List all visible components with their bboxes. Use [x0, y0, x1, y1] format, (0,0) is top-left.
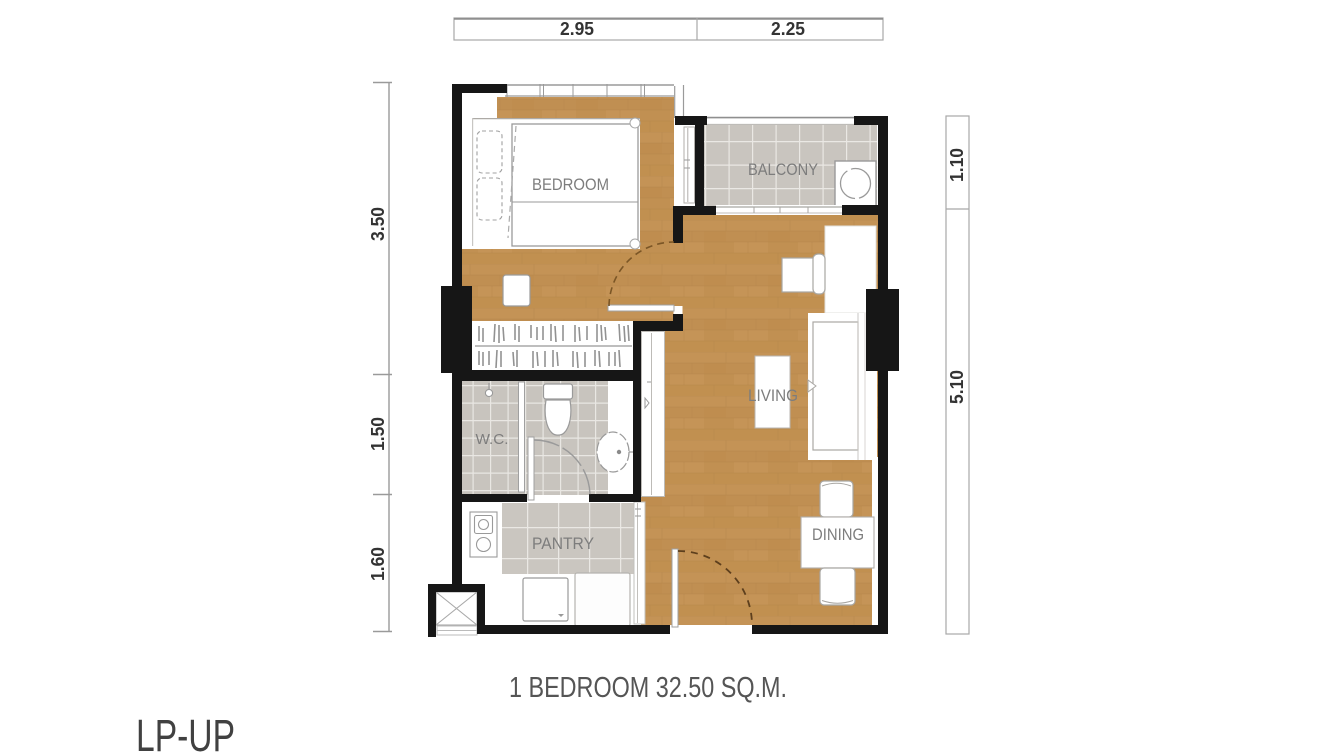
svg-text:BEDROOM: BEDROOM: [532, 175, 609, 194]
svg-text:2.95: 2.95: [560, 19, 594, 39]
svg-text:LP-UP: LP-UP: [136, 710, 235, 754]
svg-text:PANTRY: PANTRY: [532, 534, 594, 553]
svg-text:DINING: DINING: [812, 525, 864, 544]
svg-text:LIVING: LIVING: [748, 386, 798, 405]
svg-text:1.50: 1.50: [368, 417, 388, 451]
svg-text:1.10: 1.10: [947, 148, 967, 182]
svg-text:W.C.: W.C.: [476, 431, 509, 448]
svg-text:1.60: 1.60: [368, 547, 388, 581]
svg-text:BALCONY: BALCONY: [748, 160, 818, 179]
svg-text:3.50: 3.50: [368, 207, 388, 241]
svg-text:5.10: 5.10: [947, 370, 967, 404]
svg-text:2.25: 2.25: [771, 19, 805, 39]
svg-text:1 BEDROOM 32.50 SQ.M.: 1 BEDROOM 32.50 SQ.M.: [509, 672, 787, 704]
